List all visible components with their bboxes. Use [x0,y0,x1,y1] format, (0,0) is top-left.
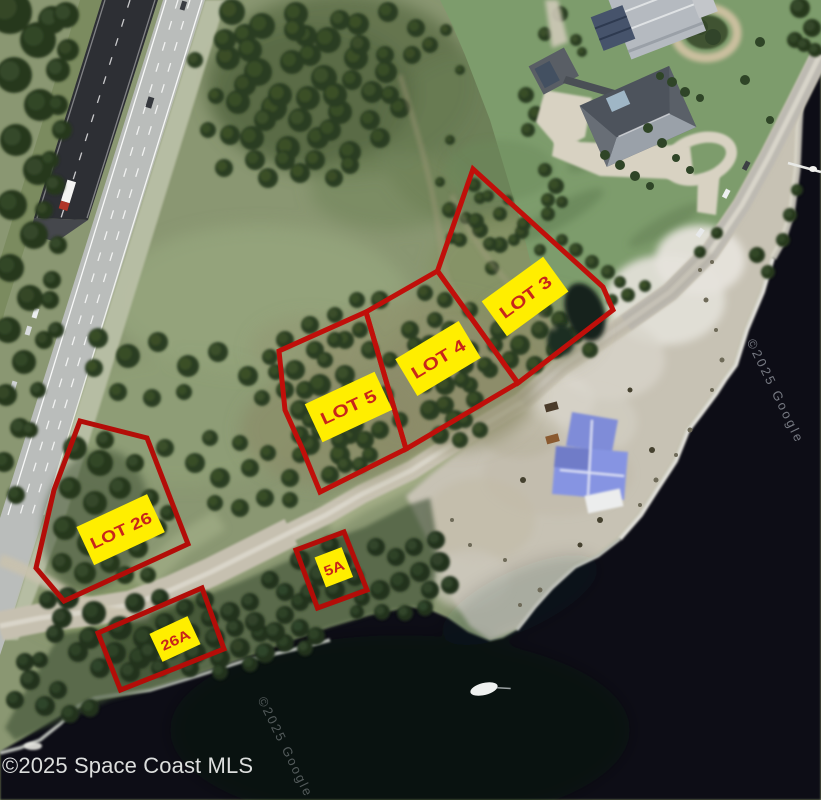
svg-text:©2025 Space Coast MLS: ©2025 Space Coast MLS [2,753,253,778]
